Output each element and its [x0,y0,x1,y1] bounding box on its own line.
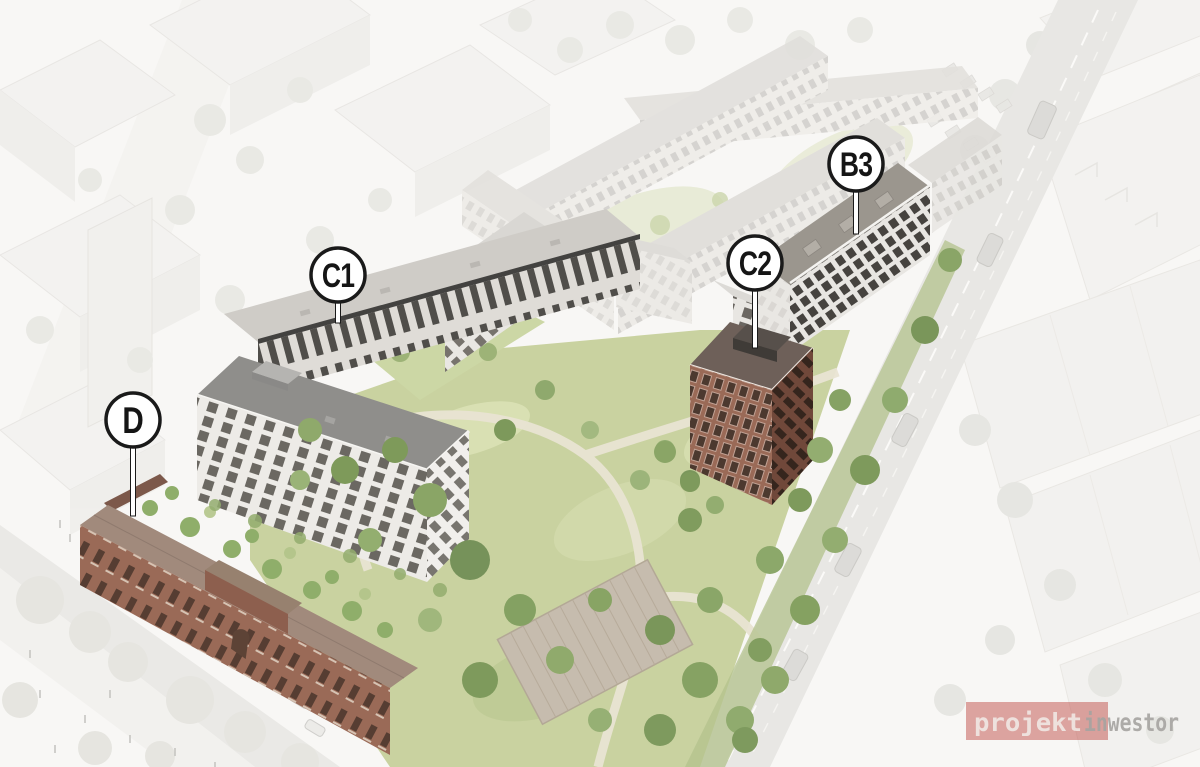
marker-b3-label: B3 [840,146,872,184]
marker-c2-label: C2 [739,245,771,283]
aerial-development-rendering: projekt inwestor D C1 C2 B3 [0,0,1200,767]
marker-b3-stick [854,189,859,234]
marker-c1-label: C1 [322,257,355,295]
marker-d-label: D [122,401,143,442]
watermark: projekt inwestor [966,702,1179,740]
watermark-text-inwestor: inwestor [1084,708,1179,737]
marker-d-stick [131,445,136,516]
watermark-text-projekt: projekt [974,708,1082,737]
site-plan-rendering: projekt inwestor D C1 C2 B3 [0,0,1200,767]
marker-c2-stick [753,288,758,348]
